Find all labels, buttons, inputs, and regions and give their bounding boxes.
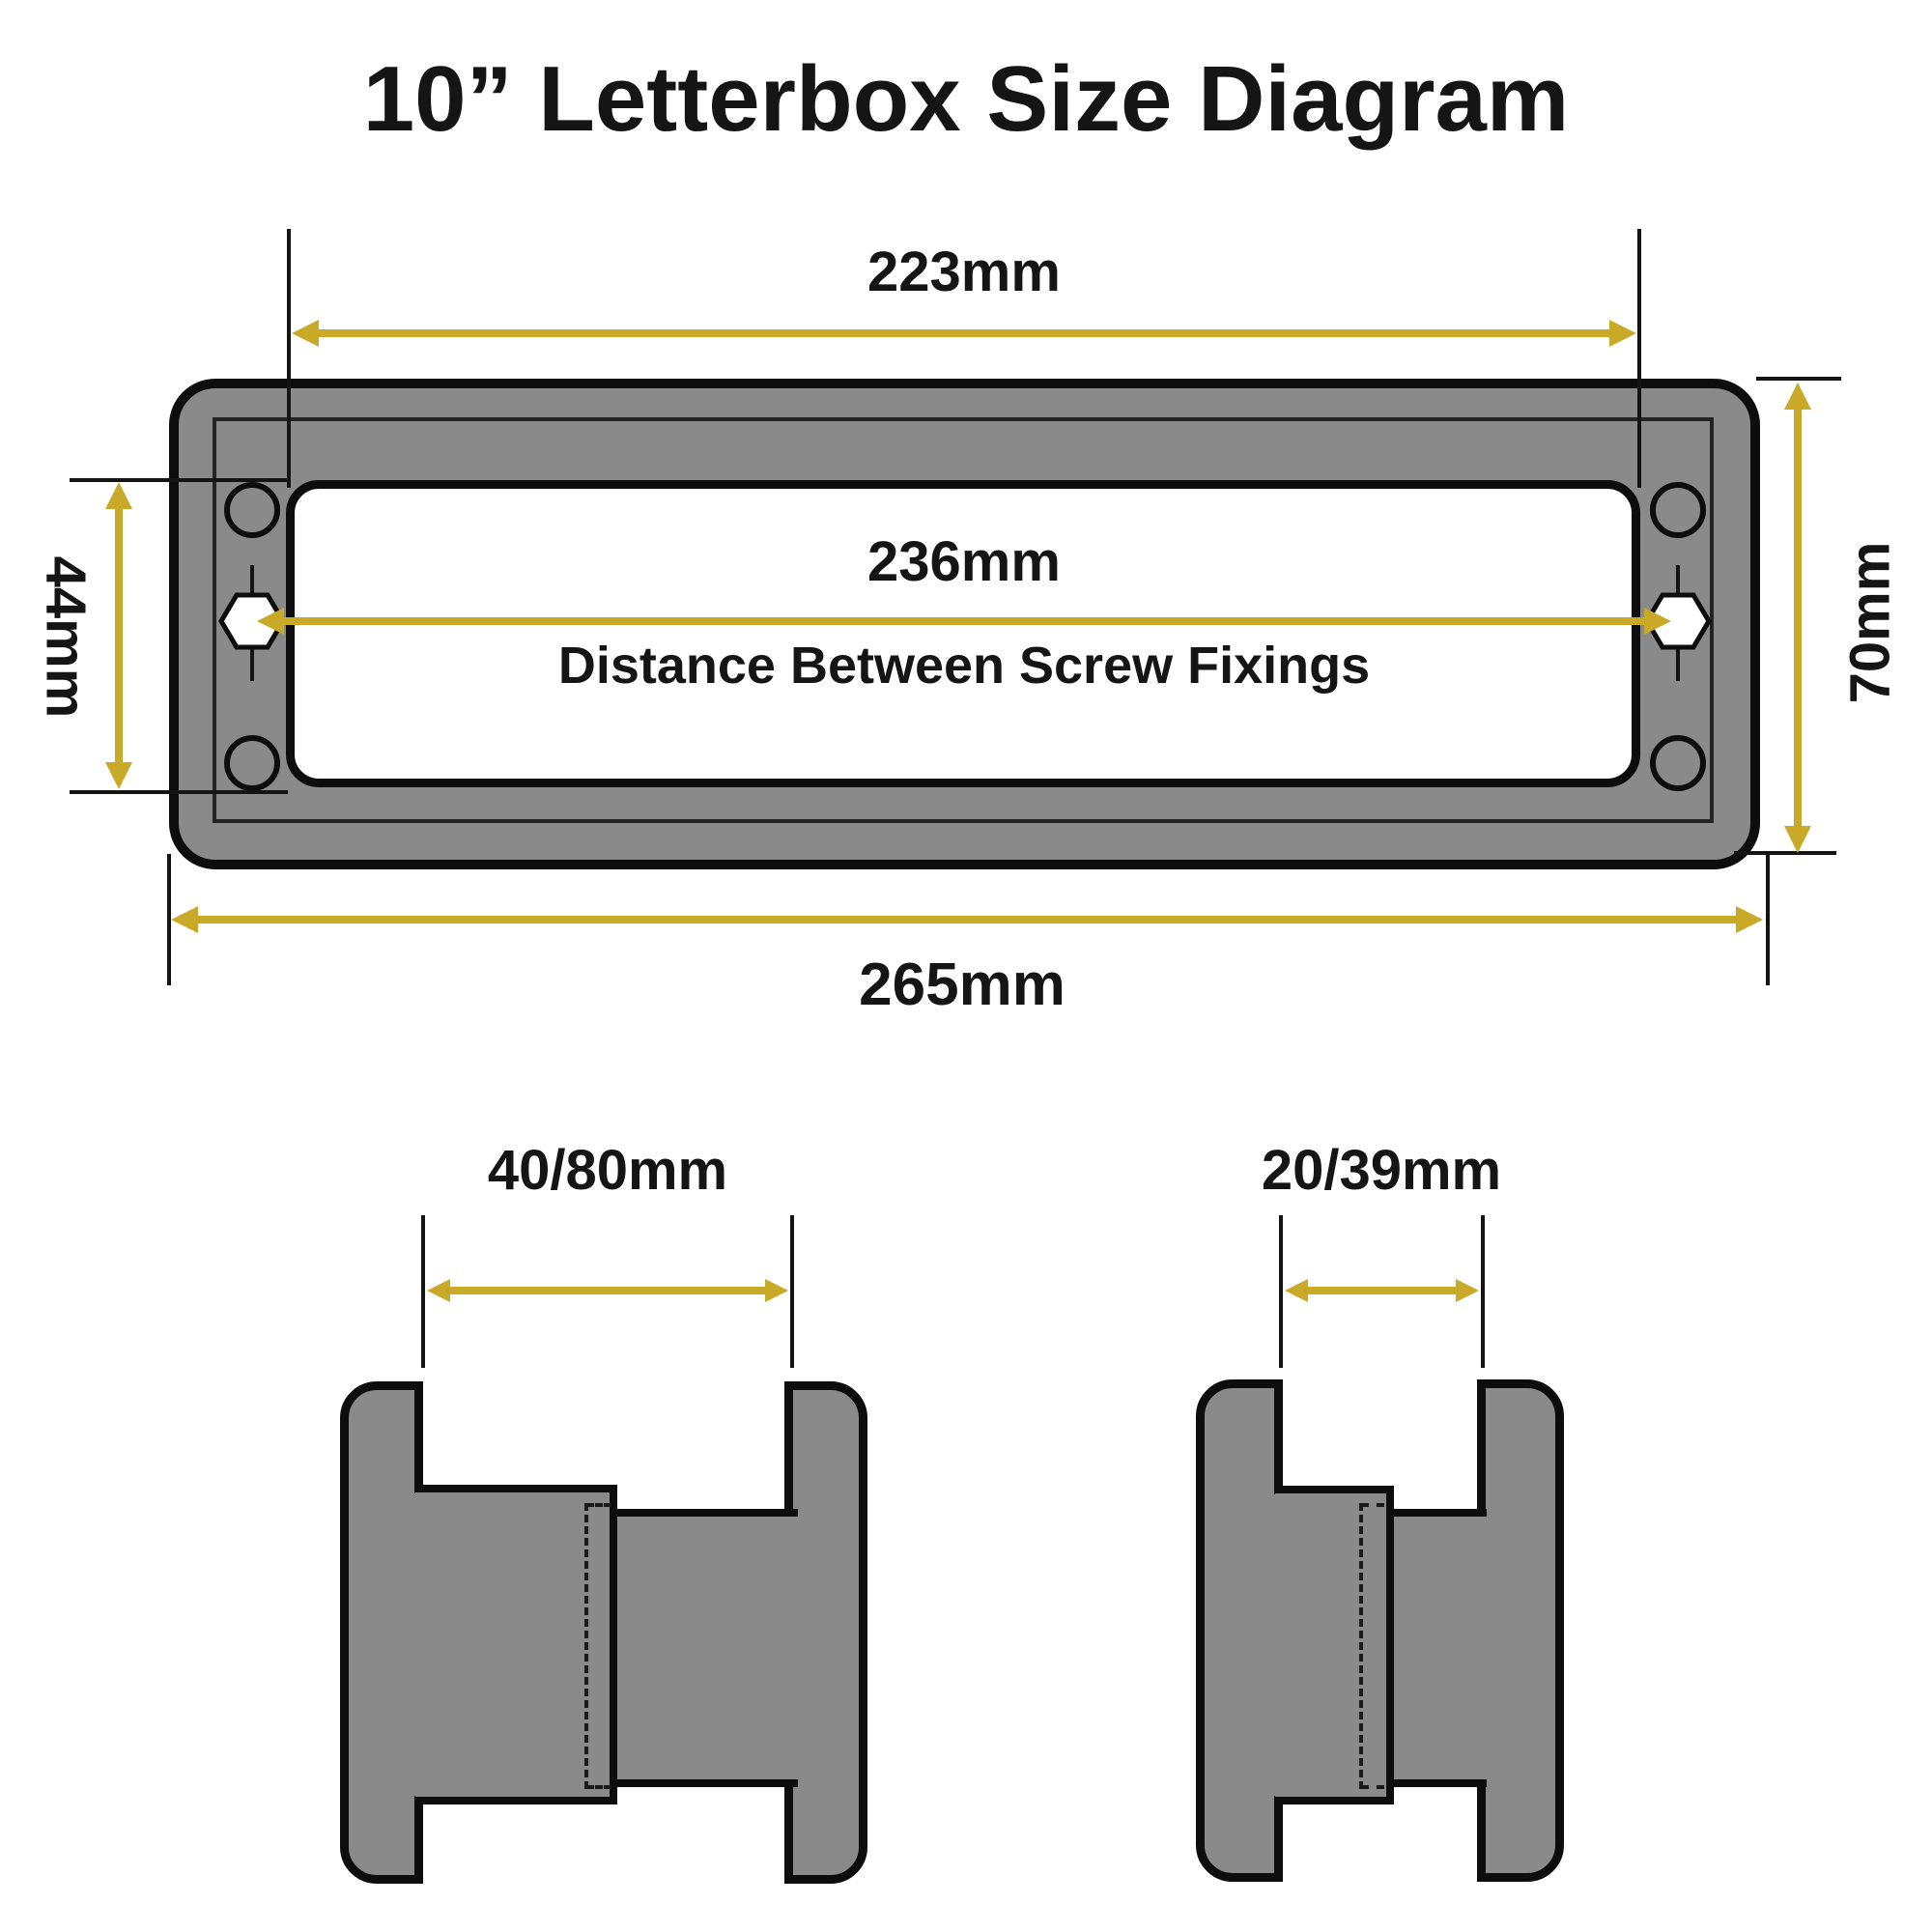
screw-hole-bottom-right — [1650, 735, 1706, 791]
extension-line — [790, 1215, 794, 1368]
page-title: 10” Letterbox Size Diagram — [0, 46, 1932, 153]
hidden-edge-dashed-line — [1359, 1503, 1363, 1789]
arrowhead-left-icon — [171, 906, 198, 933]
dimension-line — [115, 504, 123, 767]
arrowhead-left-icon — [257, 608, 284, 635]
dimension-line — [314, 329, 1616, 337]
screw-hole-top-right — [1650, 482, 1706, 538]
dimension-line — [1306, 1287, 1458, 1294]
arrowhead-right-icon — [1644, 608, 1671, 635]
joint-patch — [782, 1518, 798, 1778]
extension-line — [421, 1215, 425, 1368]
hidden-edge-dashed-stub — [586, 1503, 611, 1507]
hidden-edge-dashed-stub — [586, 1785, 611, 1789]
letterbox-size-diagram: 10” Letterbox Size Diagram 223mm 236mm D… — [0, 0, 1932, 1932]
hidden-edge-dashed-line — [584, 1503, 588, 1789]
dimension-label: 40/80mm — [439, 1138, 777, 1203]
arrowhead-left-icon — [292, 320, 319, 347]
sleeve-inner-tube — [609, 1509, 798, 1787]
arrowhead-right-icon — [1456, 1279, 1479, 1302]
extension-line — [1279, 1215, 1283, 1368]
dimension-label: 70mm — [1838, 478, 1903, 768]
arrowhead-down-icon — [105, 762, 132, 789]
tick-line — [1756, 377, 1841, 381]
tick-line — [70, 790, 288, 794]
dimension-line — [448, 1287, 767, 1294]
arrowhead-right-icon — [1609, 320, 1636, 347]
dimension-label: 223mm — [771, 240, 1157, 304]
arrowhead-left-icon — [1285, 1279, 1308, 1302]
tick-line — [70, 478, 290, 482]
extension-line — [1481, 1215, 1485, 1368]
extension-line — [1637, 229, 1641, 488]
screw-hole-top-left — [224, 482, 280, 538]
arrowhead-right-icon — [765, 1279, 788, 1302]
dimension-label: 265mm — [817, 951, 1107, 1019]
joint-patch — [1272, 1494, 1288, 1796]
joint-patch — [412, 1493, 428, 1796]
hidden-edge-dashed-stub — [1361, 1785, 1384, 1789]
extension-line — [1766, 854, 1770, 985]
screw-hole-bottom-left — [224, 735, 280, 791]
arrowhead-left-icon — [427, 1279, 450, 1302]
dimension-line — [1794, 406, 1802, 831]
extension-line — [287, 229, 291, 488]
joint-patch — [1475, 1518, 1491, 1778]
arrowhead-up-icon — [105, 482, 132, 509]
sleeve-inner-tube — [1385, 1509, 1487, 1787]
dimension-line — [282, 617, 1646, 625]
dimension-label: 236mm — [771, 529, 1157, 594]
letterbox-aperture — [286, 480, 1640, 787]
dimension-label: 44mm — [34, 493, 99, 782]
arrowhead-up-icon — [1784, 383, 1811, 410]
arrowhead-down-icon — [1784, 826, 1811, 853]
dimension-line — [194, 916, 1740, 923]
hidden-edge-dashed-stub — [1361, 1503, 1384, 1507]
sleeve-outer-tube — [1275, 1486, 1394, 1804]
sleeve-flange-left — [1196, 1379, 1283, 1882]
arrowhead-right-icon — [1736, 906, 1763, 933]
dimension-caption: Distance Between Screw Fixings — [481, 636, 1447, 696]
sleeve-flange-left — [340, 1381, 423, 1884]
dimension-label: 20/39mm — [1212, 1138, 1550, 1203]
